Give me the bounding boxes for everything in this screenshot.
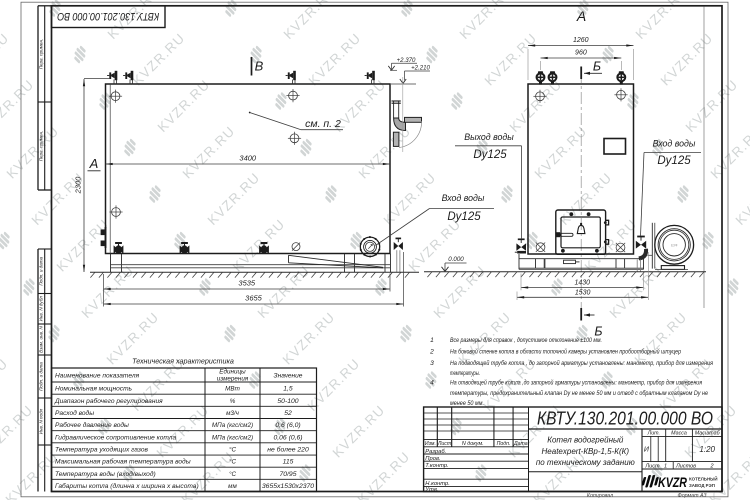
svg-text:+2.210: +2.210 <box>411 64 430 71</box>
svg-text:3535: 3535 <box>238 279 256 288</box>
svg-text:Heatexpert-КВр-1,5-К(К): Heatexpert-КВр-1,5-К(К) <box>542 447 630 456</box>
svg-text:МВт: МВт <box>225 386 240 393</box>
svg-text:°С: °С <box>229 458 237 466</box>
svg-text:КВТУ.130.201.00.000 ВО: КВТУ.130.201.00.000 ВО <box>57 10 159 22</box>
svg-text:Формат А3: Формат А3 <box>678 493 707 499</box>
svg-text:температуры, предохранительный: температуры, предохранительный клапан Dу… <box>450 390 708 397</box>
svg-text:4: 4 <box>430 379 434 386</box>
svg-text:Подп. и дата: Подп. и дата <box>38 256 43 285</box>
svg-text:Взам. инв. N: Взам. инв. N <box>38 325 43 352</box>
svg-text:ЗАВОД РЭП: ЗАВОД РЭП <box>689 483 715 488</box>
svg-text:Номинальная мощность: Номинальная мощность <box>55 386 133 393</box>
svg-text:Т.контр.: Т.контр. <box>425 463 448 469</box>
svg-text:2: 2 <box>429 349 434 356</box>
svg-text:Температура уходящих газов: Температура уходящих газов <box>55 446 148 454</box>
svg-text:KVZR: KVZR <box>658 474 688 490</box>
svg-text:1260: 1260 <box>573 37 589 44</box>
svg-text:Лит.: Лит. <box>647 431 660 437</box>
svg-text:Dy125: Dy125 <box>657 155 691 167</box>
svg-text:Лист: Лист <box>644 463 660 469</box>
svg-text:Габариты котла (длинна х ширин: Габариты котла (длинна х ширина х высота… <box>55 482 199 490</box>
svg-text:Масштаб: Масштаб <box>695 431 721 437</box>
svg-text:1: 1 <box>664 463 667 469</box>
svg-text:Котел водогрейный: Котел водогрейный <box>547 436 624 445</box>
svg-text:измерения: измерения <box>217 376 249 383</box>
svg-text:Подп. и дата: Подп. и дата <box>38 362 43 391</box>
svg-text:Инв. N дубл: Инв. N дубл <box>38 296 43 322</box>
svg-text:0.000: 0.000 <box>448 256 464 263</box>
svg-text:3655х1530х2370: 3655х1530х2370 <box>262 483 314 490</box>
svg-text:Техническая характеристика: Техническая характеристика <box>132 357 234 366</box>
svg-text:мм: мм <box>228 483 237 490</box>
svg-text:115: 115 <box>283 459 294 466</box>
svg-text:Подп.: Подп. <box>497 441 511 447</box>
svg-text:960: 960 <box>575 50 587 57</box>
svg-text:Гидравлическое сопротивление к: Гидравлическое сопротивление котла <box>55 433 176 441</box>
svg-text:Расход воды: Расход воды <box>55 409 94 417</box>
svg-text:°С: °С <box>229 470 237 478</box>
svg-text:1530: 1530 <box>575 289 591 296</box>
svg-text:Утв.: Утв. <box>424 487 438 493</box>
svg-text:ЕЗФ: ЕЗФ <box>671 244 678 248</box>
svg-text:Листов: Листов <box>675 463 696 469</box>
svg-text:2300: 2300 <box>74 176 83 195</box>
svg-text:температуры.: температуры. <box>450 370 480 377</box>
svg-text:Пров.: Пров. <box>425 456 440 462</box>
svg-text:КВТУ.130.201.00.000 ВО: КВТУ.130.201.00.000 ВО <box>537 408 713 429</box>
svg-text:Б: Б <box>593 60 601 74</box>
svg-text:1:20: 1:20 <box>699 445 715 454</box>
svg-text:Дата: Дата <box>513 441 528 447</box>
svg-text:1,5: 1,5 <box>283 386 293 393</box>
svg-text:не более 220: не более 220 <box>267 446 309 454</box>
svg-text:Единицы: Единицы <box>219 368 246 376</box>
svg-text:Лист: Лист <box>437 441 452 447</box>
svg-text:менее 50 мм.: менее 50 мм. <box>450 400 484 407</box>
svg-text:МПа (кгс/см2): МПа (кгс/см2) <box>212 434 253 441</box>
svg-text:Dy125: Dy125 <box>473 149 507 161</box>
svg-text:52: 52 <box>284 410 292 417</box>
svg-text:МПа (кгс/см2): МПа (кгс/см2) <box>212 422 253 429</box>
svg-text:Вход воды: Вход воды <box>442 193 485 203</box>
svg-text:Разраб.: Разраб. <box>425 449 446 455</box>
svg-text:Выход воды: Выход воды <box>464 132 514 142</box>
svg-text:Dy125: Dy125 <box>447 211 481 223</box>
svg-text:Максимальная рабочая температу: Максимальная рабочая температура воды <box>55 458 191 466</box>
svg-text:N докум.: N докум. <box>462 441 484 447</box>
svg-text:3400: 3400 <box>239 154 257 163</box>
svg-text:Все размеры для справок , допу: Все размеры для справок , допустимое отк… <box>450 337 602 344</box>
svg-text:0,6 (6,0): 0,6 (6,0) <box>275 422 300 429</box>
svg-text:А: А <box>576 8 586 24</box>
svg-text:Температура воды (вход/выход): Температура воды (вход/выход) <box>55 470 156 478</box>
svg-text:Значение: Значение <box>274 373 303 380</box>
svg-text:Инв. N подл: Инв. N подл <box>38 408 43 434</box>
svg-text:0,06 (0,6): 0,06 (0,6) <box>273 434 302 441</box>
svg-text:%: % <box>230 398 236 405</box>
svg-text:1: 1 <box>430 337 434 344</box>
svg-text:2: 2 <box>709 463 713 469</box>
svg-text:Перв. примен.: Перв. примен. <box>38 39 43 70</box>
svg-text:3655: 3655 <box>245 294 263 303</box>
svg-text:Диапазон рабочего регулировани: Диапазон рабочего регулирования <box>54 397 163 405</box>
svg-text:КОТЕЛЬНЫЙ: КОТЕЛЬНЫЙ <box>689 477 718 482</box>
svg-text:На отводящей трубе котла ,до з: На отводящей трубе котла ,до запорной ар… <box>450 379 703 386</box>
svg-text:+2.370: +2.370 <box>397 57 416 64</box>
svg-text:На подводящей трубе котла ,: На подводящей трубе котла , до запорной … <box>450 360 714 367</box>
svg-text:Копировал: Копировал <box>587 493 613 499</box>
svg-text:Наименование показателя: Наименование показателя <box>55 373 140 380</box>
svg-text:по техническому заданию: по техническому заданию <box>536 458 635 467</box>
svg-text:Масса: Масса <box>671 431 687 437</box>
svg-text:В: В <box>255 59 264 74</box>
svg-text:Перв. примен.: Перв. примен. <box>38 131 43 162</box>
svg-text:м3/ч: м3/ч <box>226 410 240 417</box>
svg-text:Изм.: Изм. <box>425 441 436 447</box>
svg-text:3: 3 <box>430 360 434 367</box>
svg-text:Рабочее давление воды: Рабочее давление воды <box>55 421 129 429</box>
svg-text:Вход воды: Вход воды <box>653 139 696 149</box>
svg-text:На боковой стенке котла в обла: На боковой стенке котла в области топочн… <box>450 349 681 356</box>
svg-text:°С: °С <box>229 446 237 454</box>
svg-text:50-100: 50-100 <box>277 398 298 405</box>
svg-text:1430: 1430 <box>574 279 590 286</box>
svg-text:А: А <box>89 156 99 171</box>
svg-text:70/95: 70/95 <box>279 471 296 478</box>
svg-text:см. п. 2: см. п. 2 <box>305 118 341 130</box>
